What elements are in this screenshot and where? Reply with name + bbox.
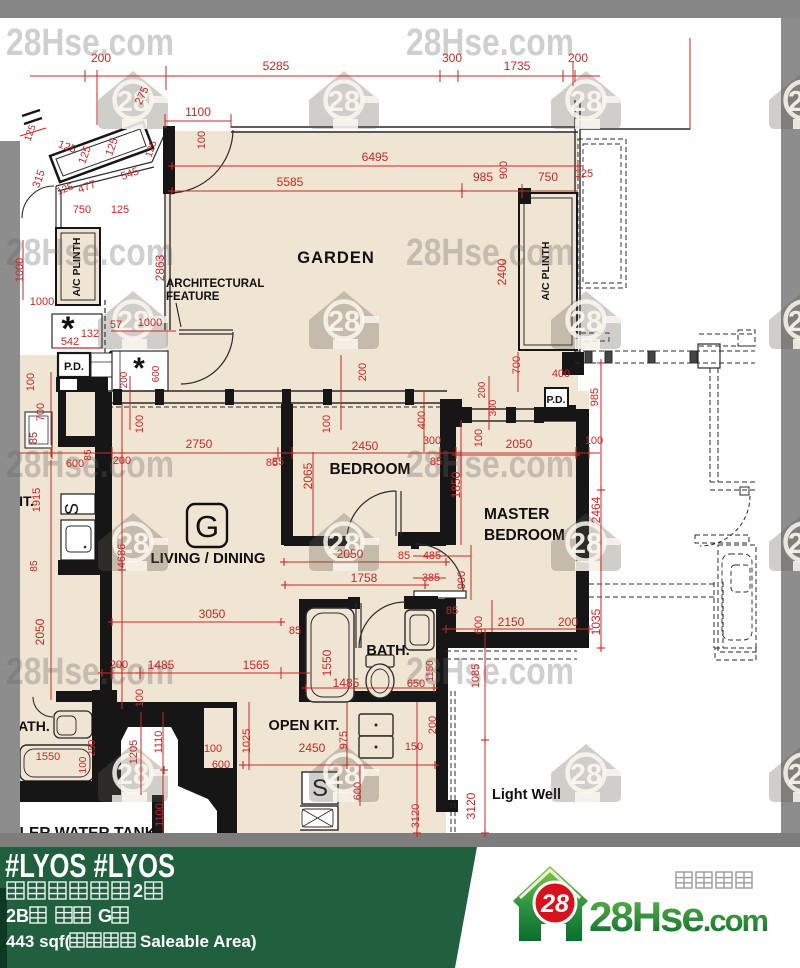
svg-text:28: 28: [540, 890, 569, 918]
svg-text:G: G: [98, 906, 112, 926]
svg-text:85: 85: [430, 456, 442, 468]
svg-text:85: 85: [398, 550, 410, 562]
svg-text:BATH.: BATH.: [366, 643, 409, 659]
svg-text:400: 400: [416, 411, 428, 429]
svg-text:MASTER: MASTER: [484, 506, 549, 523]
svg-text:2863: 2863: [153, 254, 167, 281]
svg-text:1758: 1758: [351, 571, 378, 585]
svg-text:300: 300: [488, 399, 499, 416]
svg-text:600: 600: [352, 782, 364, 800]
svg-text:85: 85: [83, 449, 94, 461]
svg-text:1000: 1000: [138, 317, 162, 329]
svg-text:G: G: [195, 509, 219, 544]
svg-text:700: 700: [35, 403, 47, 421]
svg-text:1000: 1000: [14, 258, 26, 282]
svg-text:28Hse.com: 28Hse.com: [406, 232, 574, 274]
svg-text:1850: 1850: [449, 471, 463, 498]
svg-text:1735: 1735: [504, 59, 531, 73]
svg-text:600: 600: [212, 759, 230, 771]
svg-text:2B: 2B: [6, 906, 29, 926]
svg-text:200: 200: [558, 615, 578, 629]
svg-text:2150: 2150: [498, 615, 525, 629]
svg-text:900: 900: [456, 571, 468, 589]
svg-text:542: 542: [61, 336, 79, 348]
svg-text:200: 200: [110, 659, 128, 671]
svg-text:1915: 1915: [31, 488, 43, 512]
svg-text:100: 100: [585, 435, 603, 447]
svg-text:6495: 6495: [362, 150, 389, 164]
svg-text:1565: 1565: [243, 658, 270, 672]
svg-text:100: 100: [25, 373, 37, 391]
svg-text:P.D.: P.D.: [546, 394, 565, 406]
svg-text:85: 85: [289, 625, 301, 637]
svg-text:FEATURE: FEATURE: [166, 291, 220, 303]
svg-text:2050: 2050: [33, 618, 47, 645]
svg-text:2065: 2065: [301, 462, 315, 489]
svg-text:400: 400: [552, 368, 570, 380]
svg-text:900: 900: [498, 161, 510, 179]
svg-text:85: 85: [29, 560, 40, 572]
svg-text:2450: 2450: [299, 741, 326, 755]
svg-text:85: 85: [272, 456, 284, 468]
svg-text:985: 985: [473, 170, 493, 184]
svg-text:4686: 4686: [116, 544, 128, 568]
svg-text:100: 100: [134, 415, 146, 433]
svg-text:650: 650: [407, 678, 425, 690]
svg-text:600: 600: [66, 458, 84, 470]
svg-text:250: 250: [87, 739, 98, 756]
svg-text:200: 200: [113, 455, 131, 467]
svg-text:125: 125: [575, 168, 593, 180]
svg-text:100: 100: [134, 689, 146, 707]
svg-text:3050: 3050: [199, 607, 226, 621]
svg-text:Light Well: Light Well: [492, 787, 561, 803]
svg-text:28Hse.com: 28Hse.com: [6, 232, 174, 274]
svg-text:3120: 3120: [410, 804, 422, 828]
svg-text:1035: 1035: [589, 608, 603, 635]
svg-text:BEDROOM: BEDROOM: [330, 461, 411, 478]
svg-text:200: 200: [477, 381, 488, 398]
svg-text:132: 132: [81, 328, 99, 340]
svg-text:2050: 2050: [506, 437, 533, 451]
svg-text:100: 100: [196, 131, 208, 149]
svg-text:S: S: [62, 503, 82, 515]
svg-text:1550: 1550: [36, 751, 60, 763]
svg-text:*: *: [133, 352, 145, 385]
svg-text:2050: 2050: [337, 547, 364, 561]
svg-text:1085: 1085: [470, 664, 482, 688]
svg-text:1025: 1025: [241, 729, 253, 753]
svg-text:GARDEN: GARDEN: [297, 249, 375, 267]
svg-text:28Hse.com: 28Hse.com: [406, 22, 574, 64]
svg-text:2400: 2400: [495, 258, 509, 285]
svg-text:ARCHITECTURAL: ARCHITECTURAL: [166, 278, 264, 290]
svg-text:2464: 2464: [589, 496, 603, 523]
svg-text:1100: 1100: [154, 803, 166, 827]
svg-text:125: 125: [111, 204, 129, 216]
svg-text:OPEN KIT.: OPEN KIT.: [269, 718, 340, 734]
svg-text:5585: 5585: [277, 175, 304, 189]
svg-text:750: 750: [538, 170, 558, 184]
svg-text:#LYOS #LYOS: #LYOS #LYOS: [5, 847, 175, 884]
svg-text:2750: 2750: [186, 437, 213, 451]
svg-text:100: 100: [78, 756, 89, 773]
svg-text:1205: 1205: [128, 740, 140, 764]
svg-text:700: 700: [511, 356, 523, 374]
svg-text:200: 200: [427, 716, 439, 734]
svg-text:1000: 1000: [30, 296, 54, 308]
svg-text:300: 300: [442, 51, 462, 65]
svg-text:57: 57: [110, 319, 122, 331]
svg-text:1550: 1550: [320, 649, 334, 676]
svg-text:P.D.: P.D.: [64, 361, 84, 373]
svg-text:3120: 3120: [464, 792, 478, 819]
svg-text:200: 200: [568, 51, 588, 65]
svg-text:85: 85: [28, 432, 40, 444]
svg-text:2: 2: [133, 881, 143, 901]
svg-text:85: 85: [446, 605, 458, 617]
svg-text:300: 300: [423, 435, 441, 447]
svg-text:975: 975: [338, 731, 350, 749]
svg-text:2450: 2450: [352, 439, 379, 453]
svg-text:100: 100: [473, 429, 485, 447]
svg-text:600: 600: [151, 365, 162, 382]
svg-text:100: 100: [321, 415, 333, 433]
svg-text:200: 200: [91, 51, 111, 65]
svg-text:443 sqf(: 443 sqf(: [6, 932, 71, 951]
svg-text:5285: 5285: [263, 59, 290, 73]
svg-text:150: 150: [405, 741, 423, 753]
svg-text:985: 985: [589, 388, 601, 406]
svg-text:750: 750: [73, 204, 91, 216]
svg-text:1485: 1485: [148, 658, 175, 672]
svg-text:1110: 1110: [153, 731, 165, 754]
svg-text:385: 385: [422, 572, 440, 584]
svg-text:600: 600: [473, 616, 485, 634]
svg-text:100: 100: [204, 743, 222, 755]
svg-text:1100: 1100: [185, 105, 211, 119]
svg-text:1150: 1150: [425, 660, 436, 682]
svg-text:200: 200: [357, 363, 369, 381]
svg-text:200: 200: [119, 371, 130, 388]
svg-text:1485: 1485: [333, 676, 360, 690]
svg-text:Saleable Area): Saleable Area): [140, 932, 257, 951]
svg-text:485: 485: [423, 550, 441, 562]
